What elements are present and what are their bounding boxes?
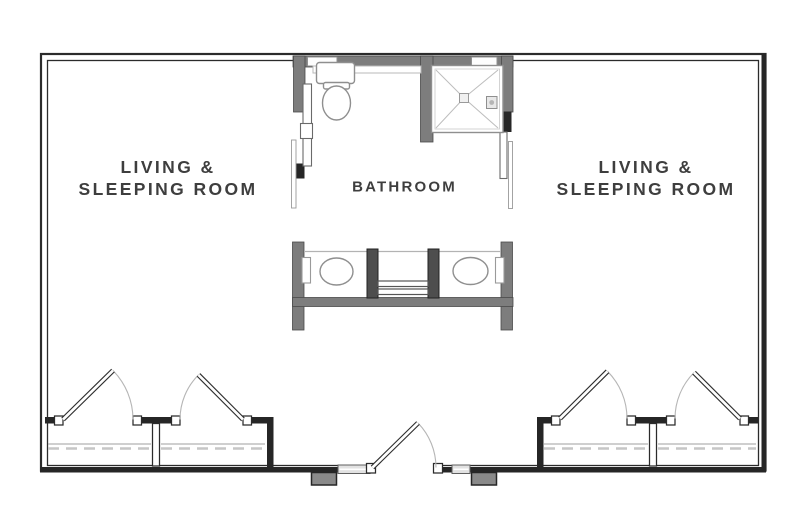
vanity — [302, 249, 504, 298]
sliding-door-track — [509, 142, 513, 209]
floor-plan: LIVING & SLEEPING ROOM LIVING & SLEEPING… — [0, 0, 800, 527]
entry-door-jamb-right — [434, 464, 443, 474]
left-room-label-line1: LIVING & — [120, 157, 215, 177]
bathroom-south-wall — [293, 298, 514, 307]
closet-divider-right — [650, 424, 657, 467]
vanity-center-stub-left — [367, 249, 378, 298]
room-labels: LIVING & SLEEPING ROOM LIVING & SLEEPING… — [79, 157, 736, 199]
left-room-label-line2: SLEEPING ROOM — [79, 179, 258, 199]
closet-door-2-leaf — [199, 375, 244, 420]
bathroom-sliding-door-right — [500, 132, 513, 209]
exterior-wall-inner — [48, 61, 759, 466]
closet-divider-left — [153, 424, 160, 467]
vanity-east-wing-wall — [501, 242, 513, 330]
closet-door-2-arc — [180, 375, 199, 420]
closet-doors — [63, 371, 740, 420]
shower-valve-knob — [489, 100, 494, 105]
vanity-sink-right — [453, 258, 488, 285]
building-outline — [40, 54, 766, 473]
vanity-center-stub-right — [428, 249, 439, 298]
closet-door-3-arc — [608, 371, 628, 418]
shower — [432, 66, 504, 133]
closets-left — [45, 416, 274, 468]
vanity-center-shelf-lower — [378, 289, 428, 295]
sliding-door-panel — [500, 132, 507, 179]
entry-area — [312, 423, 497, 485]
floor-plan-canvas: LIVING & SLEEPING ROOM LIVING & SLEEPING… — [0, 0, 800, 527]
closet-door-1-arc — [113, 371, 133, 420]
closet-end-wall-left — [267, 417, 274, 468]
toilet — [313, 63, 421, 121]
toilet-bowl — [323, 86, 351, 120]
closet-door-4-arc — [675, 373, 694, 419]
vanity-center-shelf-upper — [378, 281, 428, 287]
right-room-label-line2: SLEEPING ROOM — [557, 179, 736, 199]
toilet-tank — [317, 63, 355, 84]
vanity-side-panel-right — [496, 258, 505, 284]
closets-right — [537, 416, 758, 468]
sliding-door-track — [292, 140, 297, 208]
vanity-side-panel-left — [302, 258, 311, 284]
bathroom-label: BATHROOM — [352, 179, 457, 196]
exterior-wall-outer — [41, 54, 766, 471]
entry-step-left — [312, 473, 337, 486]
closet-door-1-leaf — [63, 371, 113, 420]
right-room-label-line1: LIVING & — [598, 157, 693, 177]
closet-door-4-leaf — [694, 373, 740, 419]
bathroom-window-right — [472, 57, 498, 66]
closet-end-wall-right — [537, 417, 544, 468]
closet-door-3-leaf — [560, 371, 608, 418]
vanity-west-wing-wall — [293, 242, 305, 330]
entry-step-right — [472, 473, 497, 486]
vanity-sink-left — [320, 258, 353, 285]
east-wall — [762, 54, 767, 472]
shower-drain — [460, 94, 469, 103]
sliding-door-handle — [301, 124, 313, 139]
